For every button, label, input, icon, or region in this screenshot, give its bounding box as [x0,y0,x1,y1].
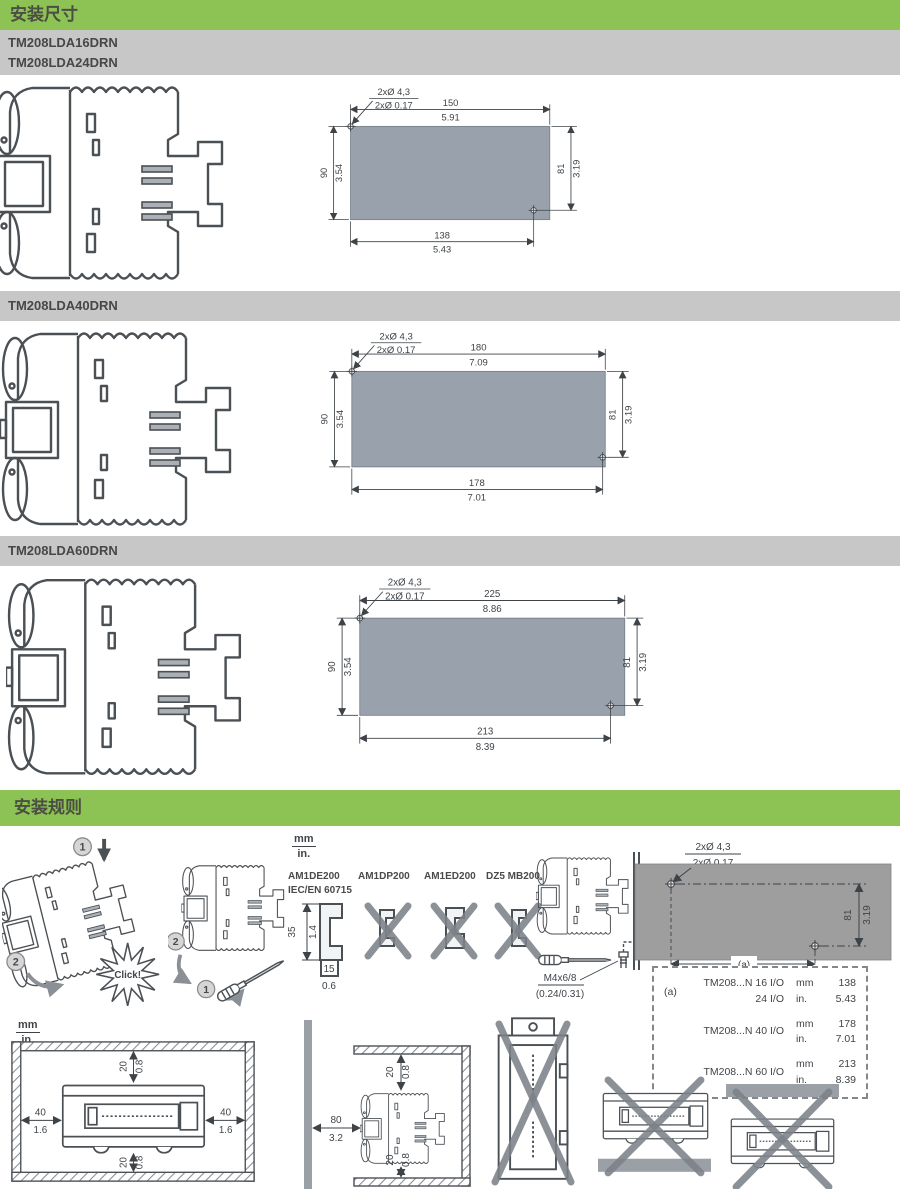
mounting-dimension-diagram-16-24: 2xØ 4,3 2xØ 0.17 150 5.91 90 3.54 81 3.1… [298,84,632,266]
rail-height-in: 1.4 [308,925,319,939]
dim-hole-h-mm: 138 [434,230,450,240]
section-title: 安装尺寸 [0,0,900,30]
dim-width-in: 7.09 [469,357,488,368]
step-1-label: 1 [203,985,209,996]
module-side-view [360,1093,444,1163]
model-cell: TM208...N 16 I/O 24 I/O [688,976,784,1008]
clearance-front-in: 3.2 [329,1133,343,1144]
clearance-bottom-in: 0.8 [134,1155,145,1169]
dim-hole-h-in: 5.43 [433,245,451,255]
rail-forbidden-label: AM1ED200 [424,870,476,884]
dim-height-mm: 90 [327,661,338,672]
value-cell: mm178 in.7.01 [796,1017,856,1049]
module-front-view [63,1086,204,1153]
hole-dim-mm: 2xØ 4,3 [388,577,422,588]
dim-hole-v-mm: 81 [622,657,633,668]
enclosure-clearance-diagram: 20 0.8 20 0.8 40 1.6 40 1.6 [8,1038,258,1185]
front-obstacle-wall [304,1020,312,1189]
clearance-right-in: 1.6 [219,1125,233,1136]
dim-height-in: 3.54 [334,164,344,182]
datasheet-page: 安装尺寸 TM208LDA16DRN TM208LDA24DRN 2 [0,0,900,1189]
drilling-plan-panel: 2xØ 4,3 2xØ 0.17 81 3.19 (a) [633,840,895,974]
rail-width-in: 0.6 [322,981,336,992]
mounting-dimension-diagram-40: 2xØ 4,3 2xØ 0.17 180 7.09 90 3.54 81 3.1… [298,328,640,515]
module-side-view-40 [0,324,240,534]
units-legend: mm in. [292,832,316,862]
screwdriver-icon [216,957,286,1003]
screwdriver-icon [539,955,611,964]
clearance-bottom-mm: 20 [385,1154,396,1166]
mounting-dimension-diagram-60: 2xØ 4,3 2xØ 0.17 225 8.86 90 3.54 81 3.1… [305,574,653,764]
model-cell: TM208...N 40 I/O [688,1024,784,1040]
dim-hole-v-in: 3.19 [862,905,873,925]
model-bar-40: TM208LDA40DRN [0,291,900,321]
clearance-top-mm: 20 [385,1066,396,1078]
rail-allowed-label: AM1DE200 IEC/EN 60715 [288,870,352,897]
step-2-label: 2 [13,957,19,969]
rail-forbidden-label: DZ5 MB200 [486,870,540,884]
model-bar-60: TM208LDA60DRN [0,536,900,566]
dim-hole-v-mm: 81 [556,164,566,174]
rail-forbidden-label: AM1DP200 [358,870,410,884]
dim-hole-h-in: 8.39 [476,742,495,753]
forbidden-vertical-mounting [483,1014,583,1189]
section-header-rules: 安装规则 [0,790,900,826]
click-label: Click! [114,970,141,981]
model-bar-16-24: TM208LDA16DRN TM208LDA24DRN [0,30,900,75]
clearance-top-in: 0.8 [134,1059,145,1073]
dim-height-in: 3.54 [343,657,354,676]
mounting-plate [360,618,625,715]
dim-width-mm: 225 [484,589,500,600]
hole-dim-in: 2xØ 0.17 [385,592,424,603]
unit-mm: mm [16,1018,40,1033]
rail-width-mm: 15 [323,964,335,975]
clearance-bottom-in: 0.8 [401,1153,412,1167]
value-cell: mm138 in.5.43 [796,976,856,1008]
dim-hole-v-in: 3.19 [623,406,634,425]
module-front-view [603,1093,707,1143]
ref-cell: (a) [664,986,688,998]
screw-size-label: M4x6/8 [544,973,577,984]
model-label: TM208LDA24DRN [0,53,900,73]
rail-height-mm: 35 [287,926,298,938]
clearance-top-in: 0.8 [401,1065,412,1079]
hole-dim-mm: 2xØ 4,3 [695,842,730,853]
forbidden-mounting-obstacle-above [724,1082,840,1189]
clearance-bottom-mm: 20 [119,1157,130,1168]
clearance-top-mm: 20 [119,1060,130,1071]
rail-profile-am1dp200-forbidden-icon [358,890,418,962]
dim-hole-v-mm: 81 [843,909,854,921]
rotate-arrow-icon [179,955,189,983]
clearance-front-mm: 80 [330,1115,342,1126]
clearance-left-mm: 40 [35,1107,46,1118]
table-row: (a) TM208...N 16 I/O 24 I/O mm138 in.5.4… [664,976,856,1008]
dim-hole-v-mm: 81 [608,409,619,420]
dim-height-mm: 90 [320,414,331,425]
model-label: TM208LDA60DRN [0,536,900,566]
m4-screw-icon [619,942,632,968]
step-2-label: 2 [173,937,179,948]
module-side-view-60 [6,570,250,784]
rail-profile-am1ed200-forbidden-icon [424,890,484,962]
hole-dim-in: 2xØ 0.17 [377,345,416,356]
hole-dim-mm: 2xØ 4,3 [379,331,412,342]
mounting-plate [351,126,550,219]
screw-size-in-label: (0.24/0.31) [536,989,584,1000]
dim-width-in: 5.91 [442,112,460,122]
din-rail-removal-illustration: 2 1 [168,848,290,1008]
hole-dim-mm: 2xØ 4,3 [377,87,410,97]
step-1-label: 1 [80,842,86,854]
forbidden-mounting-obstacle-below [598,1076,714,1177]
front-clearance-diagram: 20 0.8 20 0.8 80 3.2 [296,1020,478,1189]
screw-mounting-illustration: M4x6/8 (0.24/0.31) [536,850,648,1000]
section-title: 安装规则 [0,790,900,826]
unit-mm: mm [292,832,316,847]
dim-hole-v-in: 3.19 [638,653,649,672]
dim-height-mm: 90 [319,168,329,178]
din-rail-snap-illustration: 1 2 Click! [2,834,164,1009]
clearance-right-mm: 40 [220,1107,231,1118]
click-starburst-icon: Click! [96,943,159,1006]
dim-hole-h-mm: 213 [477,727,493,738]
hole-dim-in: 2xØ 0.17 [375,101,413,111]
section-header-dimensions: 安装尺寸 [0,0,900,30]
unit-in: in. [297,848,310,860]
dim-height-in: 3.54 [335,409,346,428]
enclosure-wall [354,1046,470,1186]
table-row: TM208...N 40 I/O mm178 in.7.01 [664,1017,856,1049]
module-side-view-16-24 [0,78,232,288]
model-label: TM208LDA16DRN [0,33,900,53]
dim-width-mm: 150 [443,98,459,108]
dim-width-in: 8.86 [483,604,502,615]
dim-hole-v-in: 3.19 [571,160,581,178]
dim-hole-h-in: 7.01 [468,493,487,504]
dim-width-mm: 180 [471,343,487,354]
clearance-left-in: 1.6 [34,1125,48,1136]
dim-hole-h-mm: 178 [469,478,485,489]
mounting-plate [352,371,605,466]
model-label: TM208LDA40DRN [0,291,900,321]
